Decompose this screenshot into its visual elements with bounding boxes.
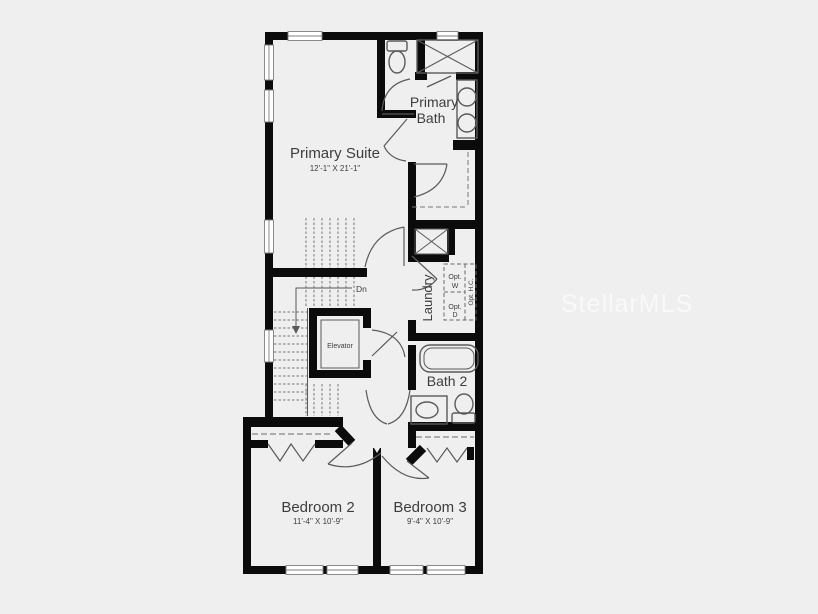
wall-segment: [243, 417, 343, 427]
closet-rods: [412, 152, 468, 207]
opt-dryer-label-line1: Opt.: [448, 304, 461, 311]
opt-washer-label-line2: W: [452, 283, 459, 290]
window: [427, 566, 465, 575]
shower-door: [427, 76, 451, 87]
primary-bath-label-line1: Primary: [410, 94, 458, 110]
door-swing: [365, 227, 404, 267]
opt-hc-label: Opt. H.C.: [468, 278, 475, 305]
wall-segment: [408, 220, 477, 229]
floor-plan: Elevator: [0, 0, 818, 614]
wall-segment: [243, 417, 251, 574]
bedroom-2-label: Bedroom 2: [281, 499, 354, 516]
wall-segment: [265, 268, 367, 277]
window: [437, 32, 458, 41]
window: [327, 566, 358, 575]
wall-segment: [408, 422, 416, 448]
door-swing: [414, 164, 447, 197]
window: [286, 566, 323, 575]
window: [265, 330, 274, 362]
opt-dryer-label-line2: D: [452, 312, 457, 319]
laundry-label: Laundry: [420, 274, 435, 321]
primary-suite-dimensions: 12'-1" X 21'-1": [310, 164, 361, 173]
window: [265, 90, 274, 122]
wall-segment: [408, 320, 416, 335]
bath-2-label: Bath 2: [427, 373, 468, 389]
wall-segment: [373, 448, 381, 566]
stairs-down-label: Dn: [356, 284, 367, 294]
wall-segment: [409, 448, 423, 462]
sink-vanity-fixture: [411, 396, 447, 424]
toilet-fixture: [387, 41, 407, 73]
window: [288, 32, 322, 41]
wall-segment: [250, 440, 268, 448]
window: [265, 45, 274, 80]
primary-bath-label-line2: Bath: [417, 110, 446, 126]
bedroom-3-label: Bedroom 3: [393, 499, 466, 516]
elevator: Elevator: [309, 308, 371, 378]
tub-fixture: [420, 345, 478, 372]
elevator-label: Elevator: [327, 343, 353, 350]
bifold-door: [268, 444, 315, 461]
wall-segment: [475, 32, 483, 574]
wall-segment: [315, 440, 343, 448]
wall-segment: [377, 40, 385, 118]
window: [265, 220, 274, 253]
primary-suite-label: Primary Suite: [290, 145, 380, 162]
door-swing: [384, 119, 407, 161]
wall-segment: [408, 333, 480, 341]
toilet-fixture: [452, 394, 475, 423]
walls: [243, 32, 483, 574]
wall-segment: [408, 345, 416, 390]
door-swing: [382, 456, 429, 479]
window: [390, 566, 423, 575]
door-swing: [372, 330, 405, 357]
double-vanity-fixture: [457, 80, 477, 138]
elevator-door-opening: [361, 328, 371, 360]
bedroom-2-dimensions: 11'-4" X 10'-9": [293, 517, 343, 526]
wall-segment: [453, 140, 480, 150]
linen-closet: [415, 229, 448, 254]
opt-washer-label-line1: Opt.: [448, 274, 461, 281]
bifold-door: [427, 448, 467, 462]
door-swing: [366, 390, 410, 424]
stellar-mls-watermark: StellarMLS: [561, 290, 693, 318]
wall-segment: [467, 447, 474, 460]
bedroom-3-dimensions: 9'-4" X 10'-9": [407, 517, 453, 526]
